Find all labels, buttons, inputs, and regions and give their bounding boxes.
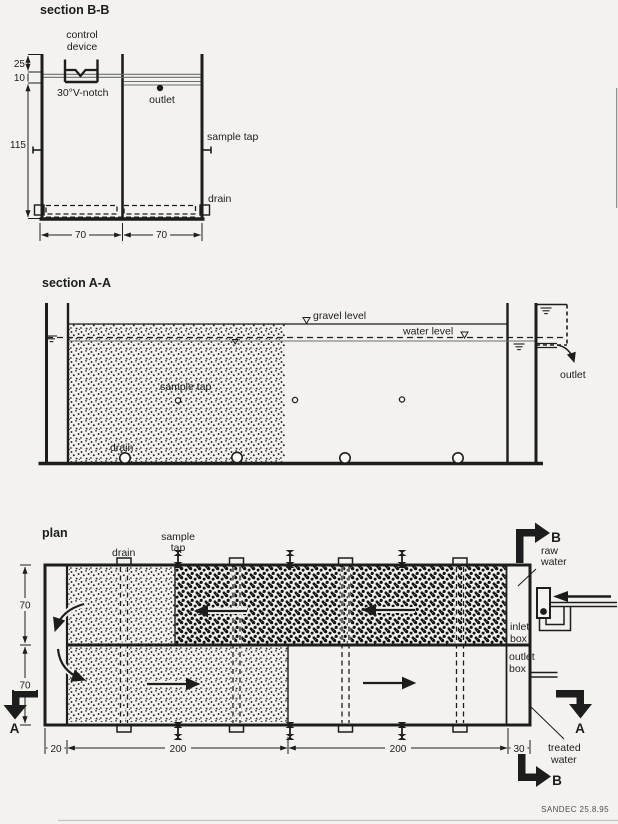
water-symbol-outlet-weir [541, 308, 552, 314]
dim-70-right: 70 [156, 230, 168, 241]
outlet-label-bb: outlet [149, 94, 175, 106]
section-bb-bottom-dimensions: 70 70 [40, 223, 202, 241]
dim-115: 115 [10, 140, 26, 151]
technical-drawing-page: section B-B control device 30°V-notch ou… [0, 0, 618, 824]
gravel-level-label: gravel level [313, 310, 366, 322]
inlet-valve-dot [540, 608, 547, 615]
drain-label-aa: drain [110, 442, 134, 454]
section-bb-view: section B-B control device 30°V-notch ou… [10, 3, 258, 241]
outlet-piping [532, 673, 558, 678]
section-marker-a-right: A [556, 690, 592, 736]
water-level-label: water level [402, 326, 453, 338]
treated-water-label-2: water [550, 754, 577, 766]
v-notch-plate [66, 70, 97, 76]
filter-drawing: section B-B control device 30°V-notch ou… [0, 0, 618, 824]
drain-label-bb: drain [208, 193, 232, 205]
control-device-label-1: control [66, 29, 98, 41]
dim-20: 20 [50, 744, 62, 755]
dim-10: 10 [14, 73, 26, 84]
outlet-box-label-2: box [509, 663, 527, 675]
section-bb-title: section B-B [40, 3, 109, 17]
dim-70-left: 70 [75, 230, 87, 241]
raw-water-leader [518, 569, 536, 586]
raw-water-label-2: water [540, 556, 567, 568]
section-aa-title: section A-A [42, 276, 111, 290]
outlet-label-aa: outlet [560, 369, 586, 381]
gravel-level-marker [303, 318, 310, 324]
sample-tap-label-aa: sample tap [160, 381, 212, 393]
sample-tap-label-bb: sample tap [207, 131, 259, 143]
marker-a-right-label: A [575, 721, 585, 736]
control-device-box [65, 60, 98, 83]
dim-200-right: 200 [390, 744, 407, 755]
plan-view: plan [4, 523, 618, 789]
section-aa-view: section A-A gravel level water level [39, 276, 586, 464]
control-device-label-2: device [67, 41, 98, 53]
gravel-bed-fill [69, 325, 285, 463]
credit-text: SANDEC 25.8.95 [541, 805, 609, 814]
treated-water-leader [530, 706, 564, 739]
section-marker-a-left: A [4, 690, 39, 736]
treated-water-label-1: treated [548, 742, 581, 754]
dim-30: 30 [513, 744, 525, 755]
dim-200-left: 200 [170, 744, 187, 755]
marker-b-top-label: B [551, 530, 561, 545]
v-notch-label: 30°V-notch [57, 87, 109, 99]
drain-label-plan: drain [112, 547, 136, 559]
raw-water-inflow-arrow [553, 591, 568, 602]
inlet-piping [537, 588, 617, 631]
outlet-box-label-1: outlet [509, 651, 535, 663]
outlet-pipe-dot [157, 85, 163, 91]
section-bb-left-dimensions: 25 10 115 [10, 55, 43, 219]
plan-title: plan [42, 526, 68, 540]
marker-a-left-label: A [10, 721, 20, 736]
dim-25: 25 [14, 59, 26, 70]
inlet-box-label-2: box [510, 633, 528, 645]
dim-70-bottom: 70 [19, 681, 31, 692]
inlet-box-label-1: inlet [510, 621, 529, 633]
marker-b-bottom-label: B [552, 773, 562, 788]
outlet-flow-arrow-aa [557, 345, 574, 360]
outlet-weir-structure [536, 305, 574, 361]
dim-70-top: 70 [19, 601, 31, 612]
sample-tap-label-plan-2: tap [171, 542, 186, 554]
water-symbol-outlet-box [514, 344, 525, 350]
